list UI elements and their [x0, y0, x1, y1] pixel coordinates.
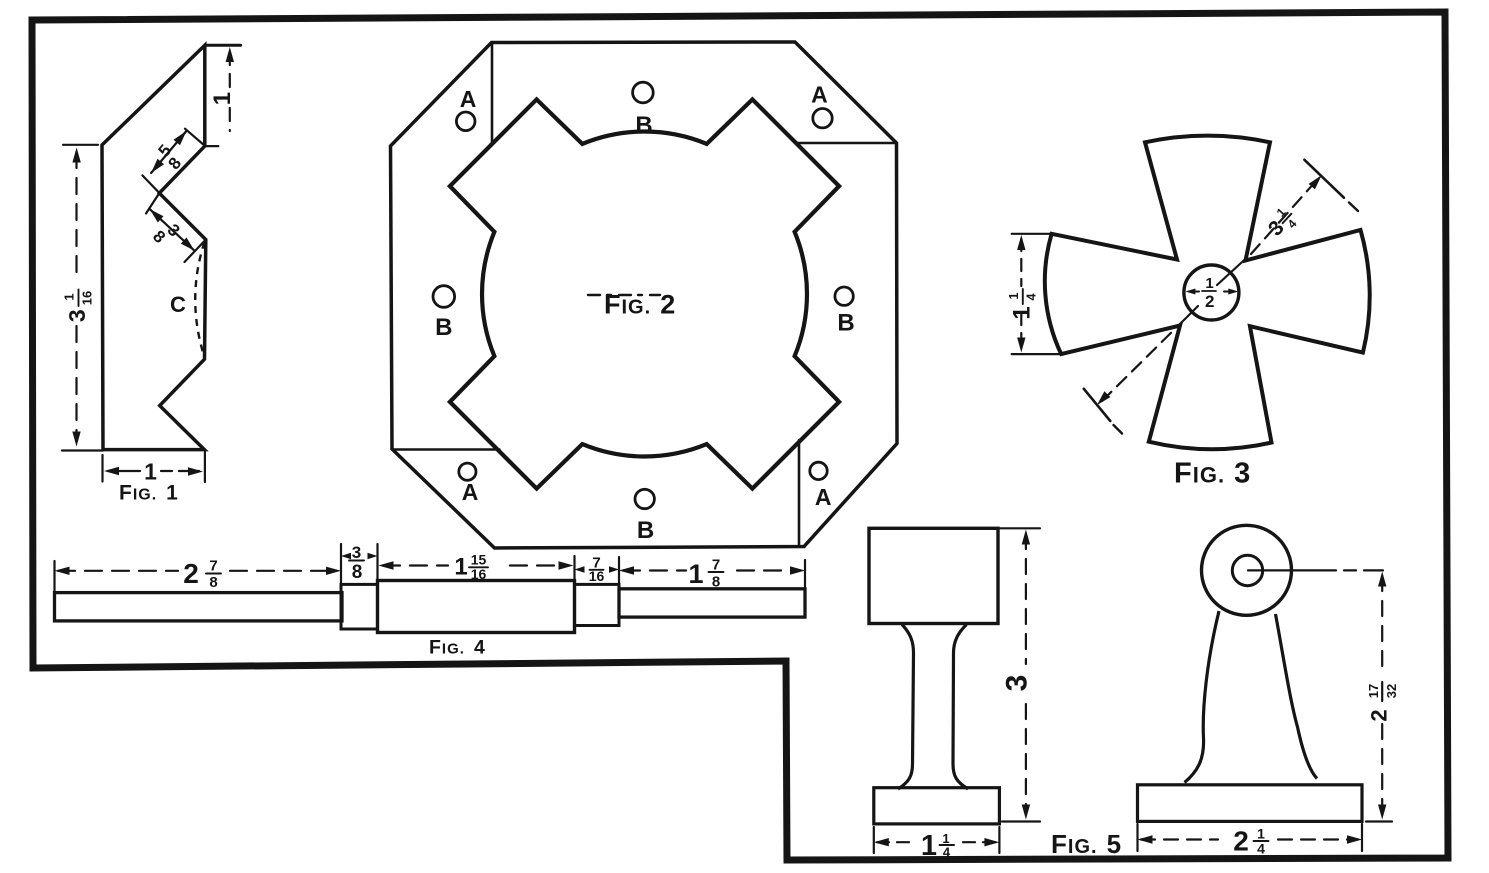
svg-text:A: A: [815, 484, 832, 510]
svg-text:1: 1: [921, 830, 937, 862]
svg-text:FIG.4: FIG.4: [429, 637, 486, 659]
svg-text:B: B: [435, 314, 452, 341]
svg-text:4: 4: [1024, 293, 1038, 300]
svg-text:2: 2: [183, 558, 199, 589]
svg-text:1: 1: [144, 459, 157, 485]
svg-text:16: 16: [589, 568, 605, 584]
svg-text:A: A: [460, 86, 477, 112]
svg-text:4: 4: [1257, 841, 1265, 857]
svg-text:2: 2: [1233, 826, 1249, 857]
svg-text:8: 8: [209, 574, 217, 591]
svg-text:1: 1: [1257, 826, 1265, 842]
svg-text:3: 3: [352, 543, 361, 562]
svg-text:1: 1: [1008, 306, 1035, 319]
svg-text:32: 32: [1384, 684, 1399, 698]
svg-text:A: A: [462, 479, 479, 505]
svg-text:A: A: [811, 82, 828, 108]
svg-text:7: 7: [209, 558, 217, 575]
svg-text:1: 1: [62, 293, 77, 300]
svg-text:B: B: [637, 517, 654, 544]
svg-text:FIG.3: FIG.3: [1174, 458, 1251, 490]
svg-text:8: 8: [712, 574, 720, 591]
svg-text:B: B: [837, 310, 854, 337]
svg-text:4: 4: [943, 845, 951, 860]
svg-text:1: 1: [1205, 275, 1213, 292]
svg-text:17: 17: [1366, 684, 1381, 698]
svg-text:7: 7: [712, 557, 720, 574]
svg-text:1: 1: [688, 559, 703, 589]
svg-text:B: B: [635, 112, 652, 139]
svg-text:2: 2: [1367, 709, 1392, 721]
svg-text:2: 2: [1205, 292, 1214, 311]
svg-text:16: 16: [80, 291, 95, 305]
svg-text:C: C: [170, 292, 186, 317]
svg-text:1: 1: [1007, 292, 1021, 299]
svg-text:16: 16: [471, 566, 487, 582]
svg-text:1: 1: [209, 92, 236, 105]
svg-text:3: 3: [1001, 675, 1034, 692]
svg-text:8: 8: [352, 562, 363, 583]
svg-text:3: 3: [64, 309, 90, 322]
svg-text:1: 1: [454, 554, 467, 581]
